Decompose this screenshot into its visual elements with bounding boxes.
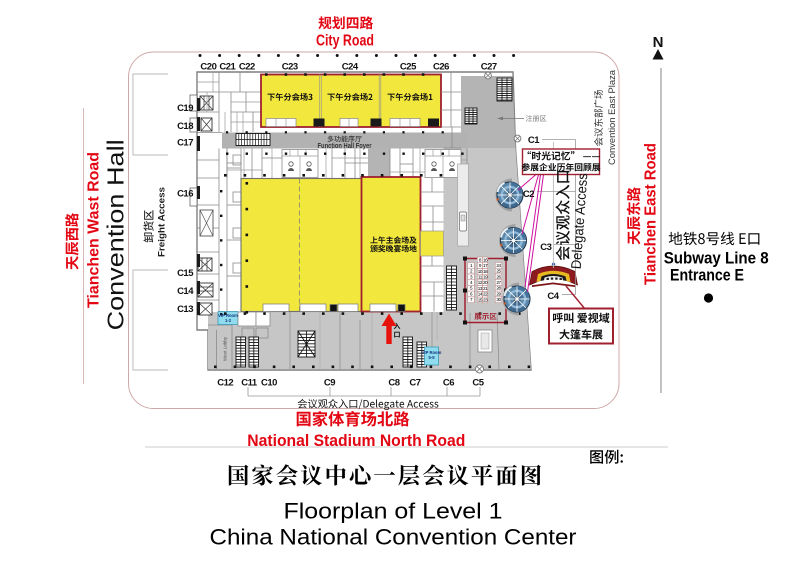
- svg-text:C12: C12: [217, 378, 233, 389]
- svg-text:C10: C10: [261, 378, 277, 389]
- svg-text:C7: C7: [409, 378, 420, 389]
- svg-text:C23: C23: [282, 62, 298, 73]
- svg-text:C14: C14: [177, 286, 194, 297]
- svg-text:C11: C11: [241, 378, 258, 389]
- svg-text:C26: C26: [433, 62, 449, 73]
- svg-text:Convention East Plaza: Convention East Plaza: [607, 69, 618, 165]
- svg-text:C15: C15: [177, 268, 194, 279]
- svg-text:C22: C22: [239, 62, 255, 73]
- svg-text:C21: C21: [219, 62, 236, 73]
- svg-text:C24: C24: [342, 62, 359, 73]
- svg-text:Tianchen Wast Road: Tianchen Wast Road: [86, 152, 103, 308]
- svg-text:C1: C1: [528, 135, 540, 146]
- svg-text:C20: C20: [200, 62, 216, 73]
- svg-text:C5: C5: [472, 378, 484, 389]
- svg-text:C17: C17: [177, 138, 193, 149]
- svg-text:C2: C2: [523, 189, 534, 200]
- svg-text:C8: C8: [388, 378, 399, 389]
- svg-text:Function Hall Foyer: Function Hall Foyer: [318, 143, 372, 150]
- svg-text:Floorplan of Level 1: Floorplan of Level 1: [284, 499, 503, 524]
- svg-text:N: N: [653, 34, 664, 51]
- svg-text:Freight Access: Freight Access: [157, 187, 168, 257]
- svg-text:China National Convention Cent: China National Convention Center: [210, 525, 577, 550]
- svg-text:City Road: City Road: [316, 33, 374, 50]
- svg-text:National Stadium North Road: National Stadium North Road: [247, 431, 465, 450]
- svg-text:C9: C9: [324, 378, 335, 389]
- svg-text:5-5: 5-5: [428, 355, 435, 360]
- svg-text:Tianchen East Road: Tianchen East Road: [643, 143, 660, 285]
- svg-text:C13: C13: [177, 304, 193, 315]
- svg-text:C6: C6: [443, 378, 454, 389]
- svg-text:C4: C4: [547, 291, 559, 302]
- svg-text:Entrance E: Entrance E: [670, 266, 744, 285]
- svg-text:C27: C27: [481, 62, 497, 73]
- svg-text:C16: C16: [177, 189, 193, 200]
- svg-text:C18: C18: [177, 121, 193, 132]
- svg-text:C25: C25: [400, 62, 417, 73]
- svg-text:Convention Hall: Convention Hall: [102, 139, 128, 330]
- svg-text:C3: C3: [540, 242, 551, 253]
- svg-text:C19: C19: [177, 103, 193, 114]
- svg-text:West Lobby: West Lobby: [223, 336, 228, 361]
- svg-text:1-2: 1-2: [225, 318, 232, 323]
